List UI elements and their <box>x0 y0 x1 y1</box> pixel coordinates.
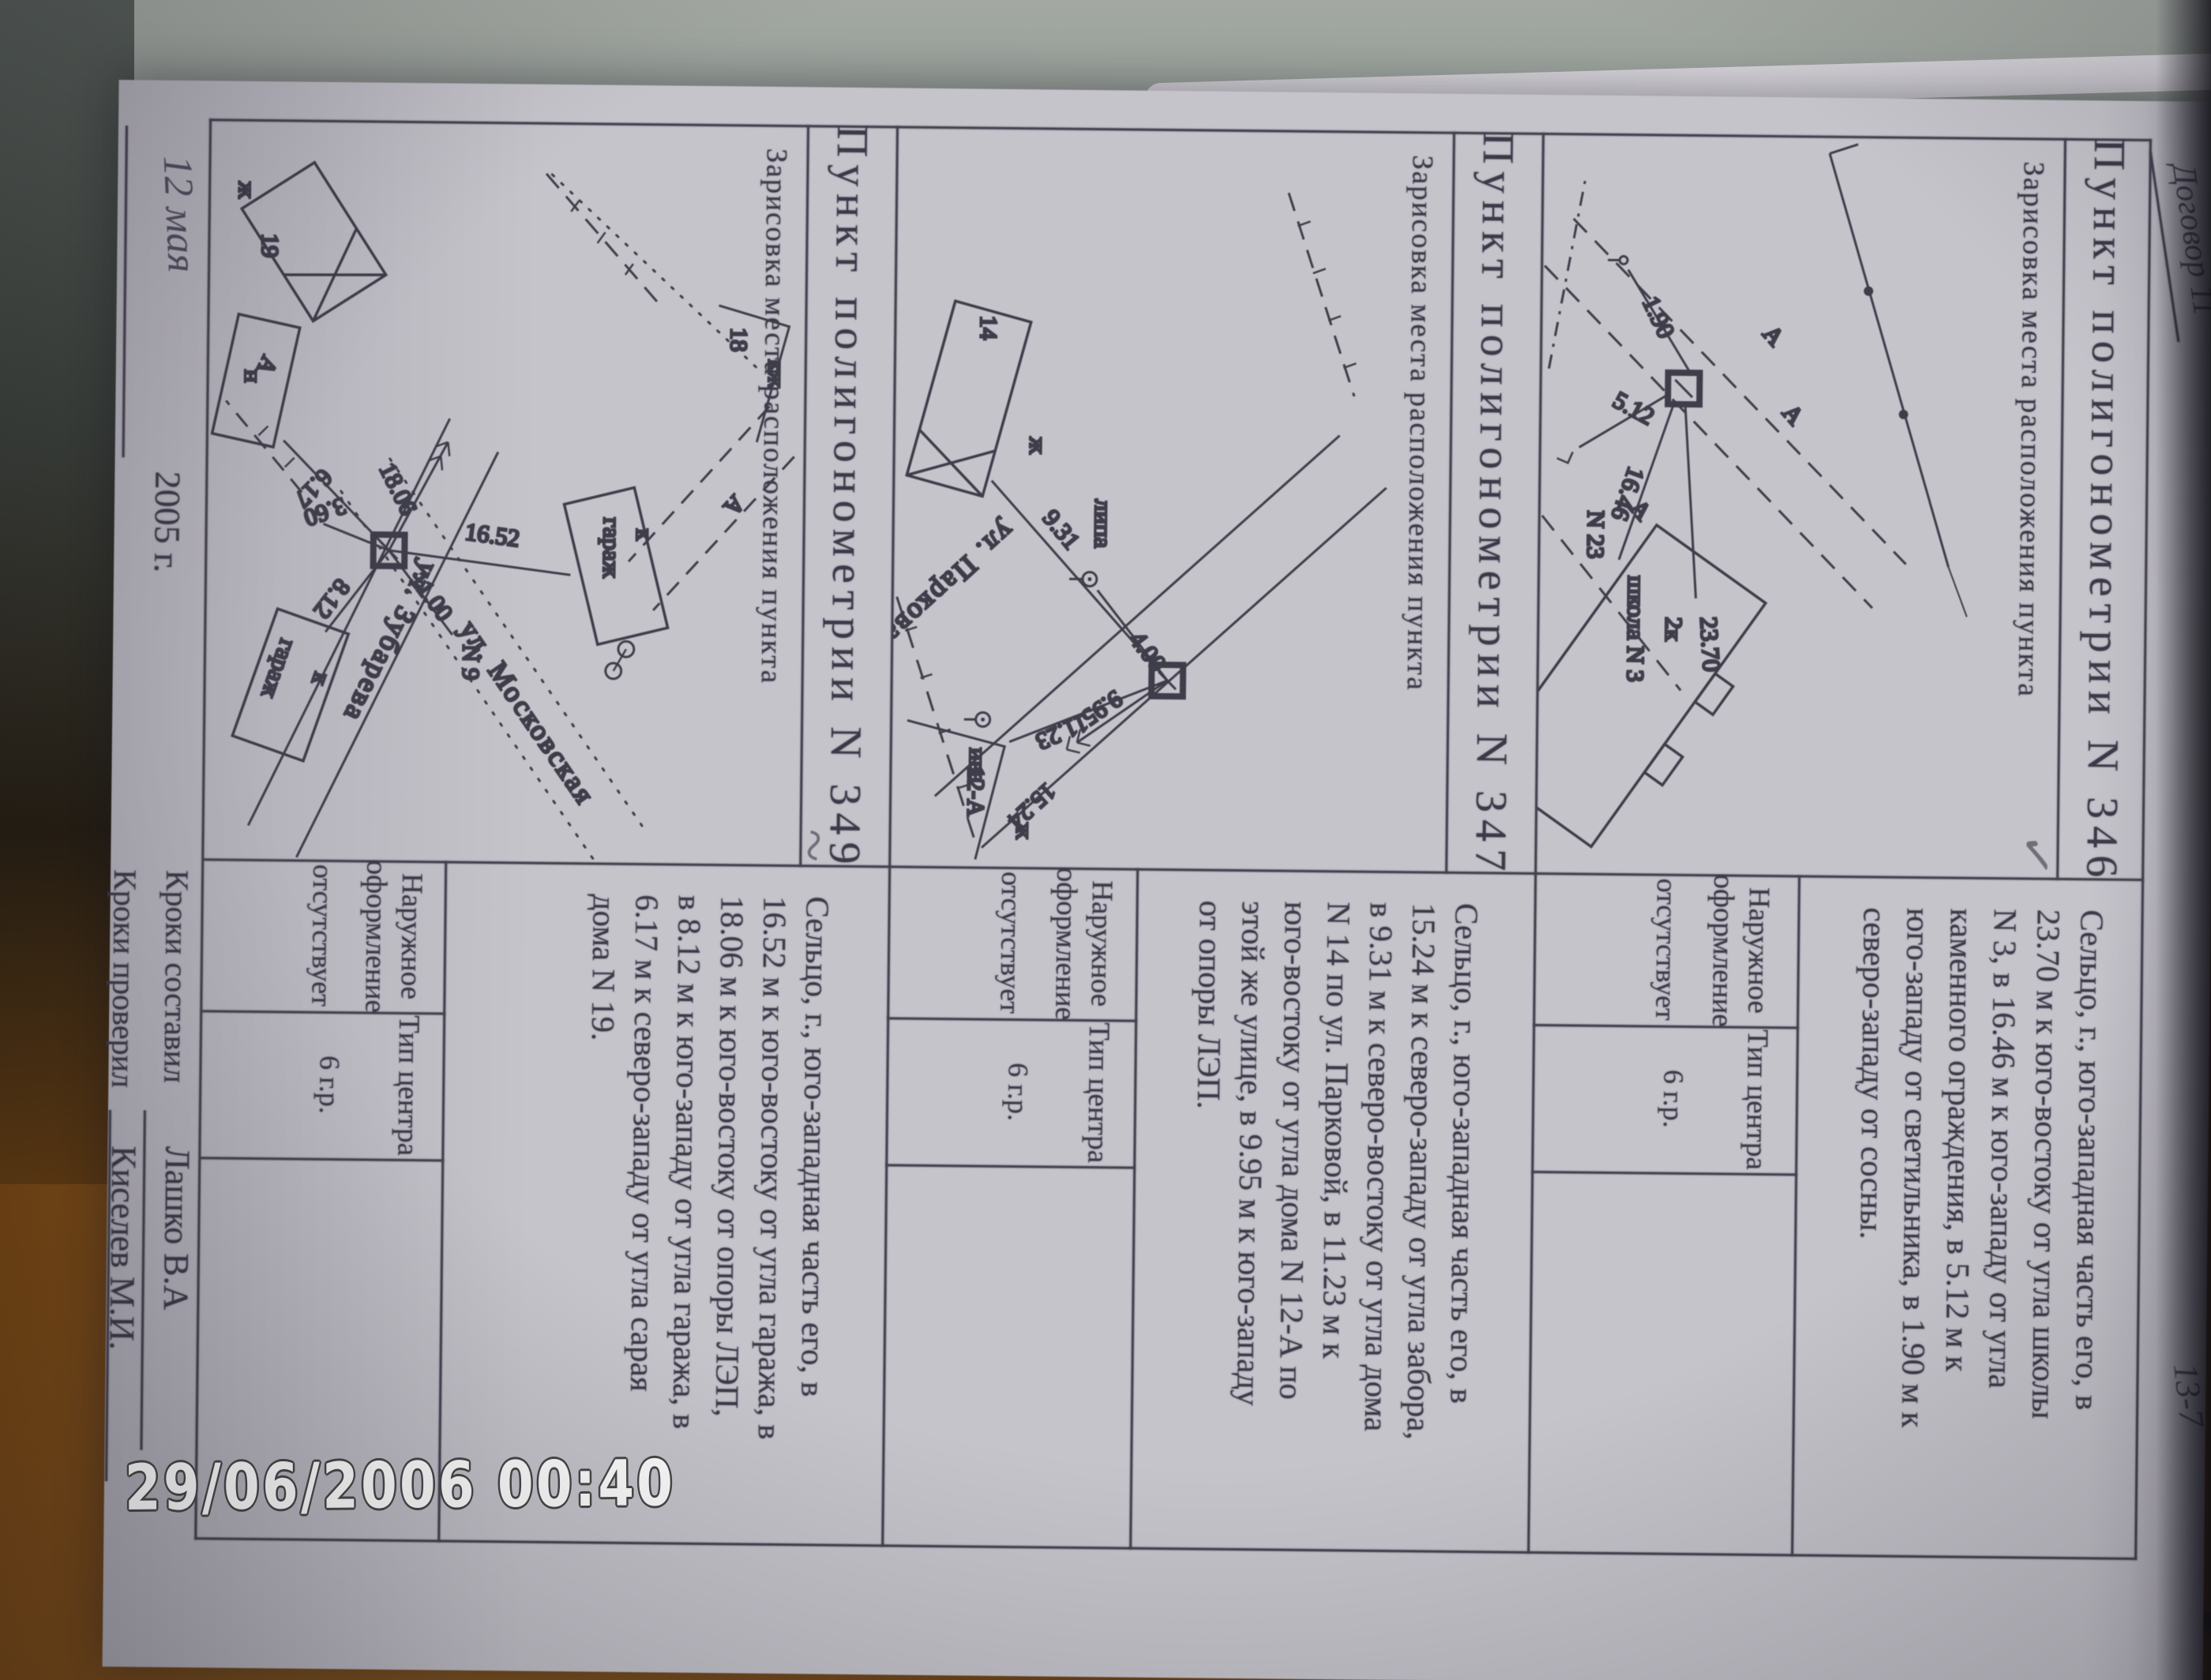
desc-line: N 3, в 16.46 м к юго-западу от угла <box>1976 909 2026 1541</box>
center-type-value: 6 г.р. <box>312 1011 347 1158</box>
outer-design-label: Наружное <box>1083 868 1120 1019</box>
center-type-cell: Тип центра 6 г.р. <box>201 1010 445 1159</box>
svg-text:липа: липа <box>1089 499 1117 549</box>
footer-date-underline <box>122 126 128 457</box>
svg-text:18: 18 <box>726 328 753 352</box>
desc-line: 16.52 м к юго-востоку от угла гаража, в <box>747 896 796 1528</box>
outer-design-value: отсутствует <box>1649 873 1684 1025</box>
photo-of-document: Договор 11 13-7 Пункт полигонометрии N 3… <box>0 0 2211 1680</box>
desc-line: Сельцо, г., юго-западная часть его, в <box>790 896 839 1528</box>
svg-text:N 9: N 9 <box>457 644 484 681</box>
desc-line: юго-западу от светильника, в 1.90 м к <box>1890 908 1939 1540</box>
svg-text:19: 19 <box>257 234 283 258</box>
outer-design-cell: Наружное оформление отсутствует <box>202 858 447 1012</box>
center-type-cell: Тип центра 6 г.р. <box>885 1017 1137 1166</box>
footer-made-label: Кроки составил <box>156 870 196 1083</box>
svg-text:ж: ж <box>234 181 261 199</box>
desc-line: каменного ограждения, в 5.12 м к <box>1933 908 1983 1540</box>
center-type-cell: Тип центра 6 г.р. <box>1531 1024 1799 1174</box>
record-punkt-349: Пункт полигонометрии N 349 ~ Зарисовка м… <box>196 81 897 1674</box>
svg-text:5.12: 5.12 <box>1609 386 1659 431</box>
outer-design-label: оформление <box>357 860 394 1011</box>
svg-text:ива: ива <box>964 748 991 783</box>
svg-text:А: А <box>1758 320 1790 351</box>
site-sketch-347: ул. Парковая 14 ж 9.31 липа 4.00 11.23 1… <box>891 126 1453 871</box>
document-page: Договор 11 13-7 Пункт полигонометрии N 3… <box>103 80 2211 1680</box>
center-type-label: Тип центра <box>389 1012 445 1160</box>
desc-line: юго-востоку от угла дома N 12-А по <box>1268 902 1317 1534</box>
site-sketch-346: А А А 1.90 5.12 16.46 23.70 <box>1537 133 2065 878</box>
desc-line: в 9.31 м к северо-востоку от угла дома <box>1353 902 1402 1535</box>
svg-text:N 23: N 23 <box>1582 511 1610 559</box>
desc-line: N 14 по ул. Парковой, в 11.23 м к <box>1311 902 1360 1534</box>
footer-year: 2005 г. <box>146 471 189 573</box>
svg-text:ж: ж <box>1024 436 1051 454</box>
outer-design-label: оформление <box>1704 874 1741 1026</box>
svg-text:школа N 3: школа N 3 <box>1622 576 1650 682</box>
desc-line: от опоры ЛЭП. <box>1183 900 1232 1532</box>
description-text: Сельцо, г., юго-западная часть его, в 15… <box>1183 900 1488 1535</box>
desc-line: в 8.12 м к юго-западу от угла гаража, в <box>662 894 711 1527</box>
svg-text:к: к <box>631 529 658 541</box>
record-punkt-347: Пункт полигонометрии N 347 Зарисовка мес… <box>880 88 1542 1680</box>
description-text: Сельцо, г., юго-западная часть его, в 23… <box>1846 907 2113 1541</box>
desc-line: 15.24 м к северо-западу от угла забора, <box>1396 902 1445 1535</box>
outer-design-value: отсутствует <box>305 860 340 1011</box>
footer-made-name: Лашко В.А <box>156 1146 197 1311</box>
record-title: Пункт полигонометрии N 347 <box>1447 132 1541 872</box>
svg-text:гараж: гараж <box>598 517 625 579</box>
description-text: Сельцо, г., юго-западная часть его, в 16… <box>576 894 839 1528</box>
desc-line: 6.17 м к северо-западу от угла сарая <box>619 894 668 1527</box>
outer-design-value: отсутствует <box>993 867 1028 1018</box>
desc-line: 23.70 м к юго-востоку от угла школы <box>2020 909 2070 1541</box>
center-type-label: Тип центра <box>1079 1019 1137 1167</box>
svg-text:16.52: 16.52 <box>464 518 521 552</box>
book-spine-shadow <box>2156 0 2211 1680</box>
outer-design-cell: Наружное оформление отсутствует <box>887 865 1139 1019</box>
outer-design-cell: Наружное оформление отсутствует <box>1533 872 1800 1027</box>
record-title: Пункт полигонометрии N 349 <box>801 125 895 865</box>
outer-design-label: оформление <box>1047 868 1084 1019</box>
center-type-value: 6 г.р. <box>1000 1018 1035 1165</box>
svg-text:9.31: 9.31 <box>1038 504 1086 554</box>
svg-text:2к: 2к <box>1660 617 1687 642</box>
svg-text:8.12: 8.12 <box>308 574 355 624</box>
svg-text:А: А <box>1777 399 1810 430</box>
outer-design-label: Наружное <box>392 861 430 1012</box>
svg-text:А: А <box>719 490 750 521</box>
record-title: Пункт полигонометрии N 346 <box>2059 138 2152 879</box>
svg-text:к: к <box>306 669 336 690</box>
desc-line: дома N 19. <box>576 894 625 1526</box>
svg-text:кж: кж <box>763 359 790 388</box>
desc-line: северо-западу от сосны. <box>1846 907 1896 1539</box>
footer-date: 12 мая <box>154 155 205 274</box>
desc-line: Сельцо, г., юго-западная часть его, в <box>1439 903 1488 1536</box>
svg-text:гараж: гараж <box>256 636 302 702</box>
desc-line: 18.06 м к юго-востоку от опоры ЛЭП, <box>704 895 753 1528</box>
desc-line: Сельцо, г., юго-западная часть его, в <box>2063 909 2113 1542</box>
desc-line: этой же улице, в 9.95 м к юго-западу <box>1226 901 1274 1533</box>
record-punkt-346: Пункт полигонометрии N 346 ✓ Зарисовка м… <box>1526 95 2152 1680</box>
site-sketch-349: кж 18 А ул. Московская ул. Зубарева к га… <box>206 118 807 864</box>
svg-text:14: 14 <box>975 315 1002 339</box>
outer-design-label: Наружное <box>1740 875 1777 1026</box>
footer-checked-label: Кроки проверил <box>104 869 144 1088</box>
camera-timestamp: 29/06/2006 00:40 <box>125 1446 676 1524</box>
center-type-value: 6 г.р. <box>1656 1026 1691 1172</box>
center-type-label: Тип центра <box>1738 1026 1799 1174</box>
svg-text:1.90: 1.90 <box>1637 292 1680 343</box>
